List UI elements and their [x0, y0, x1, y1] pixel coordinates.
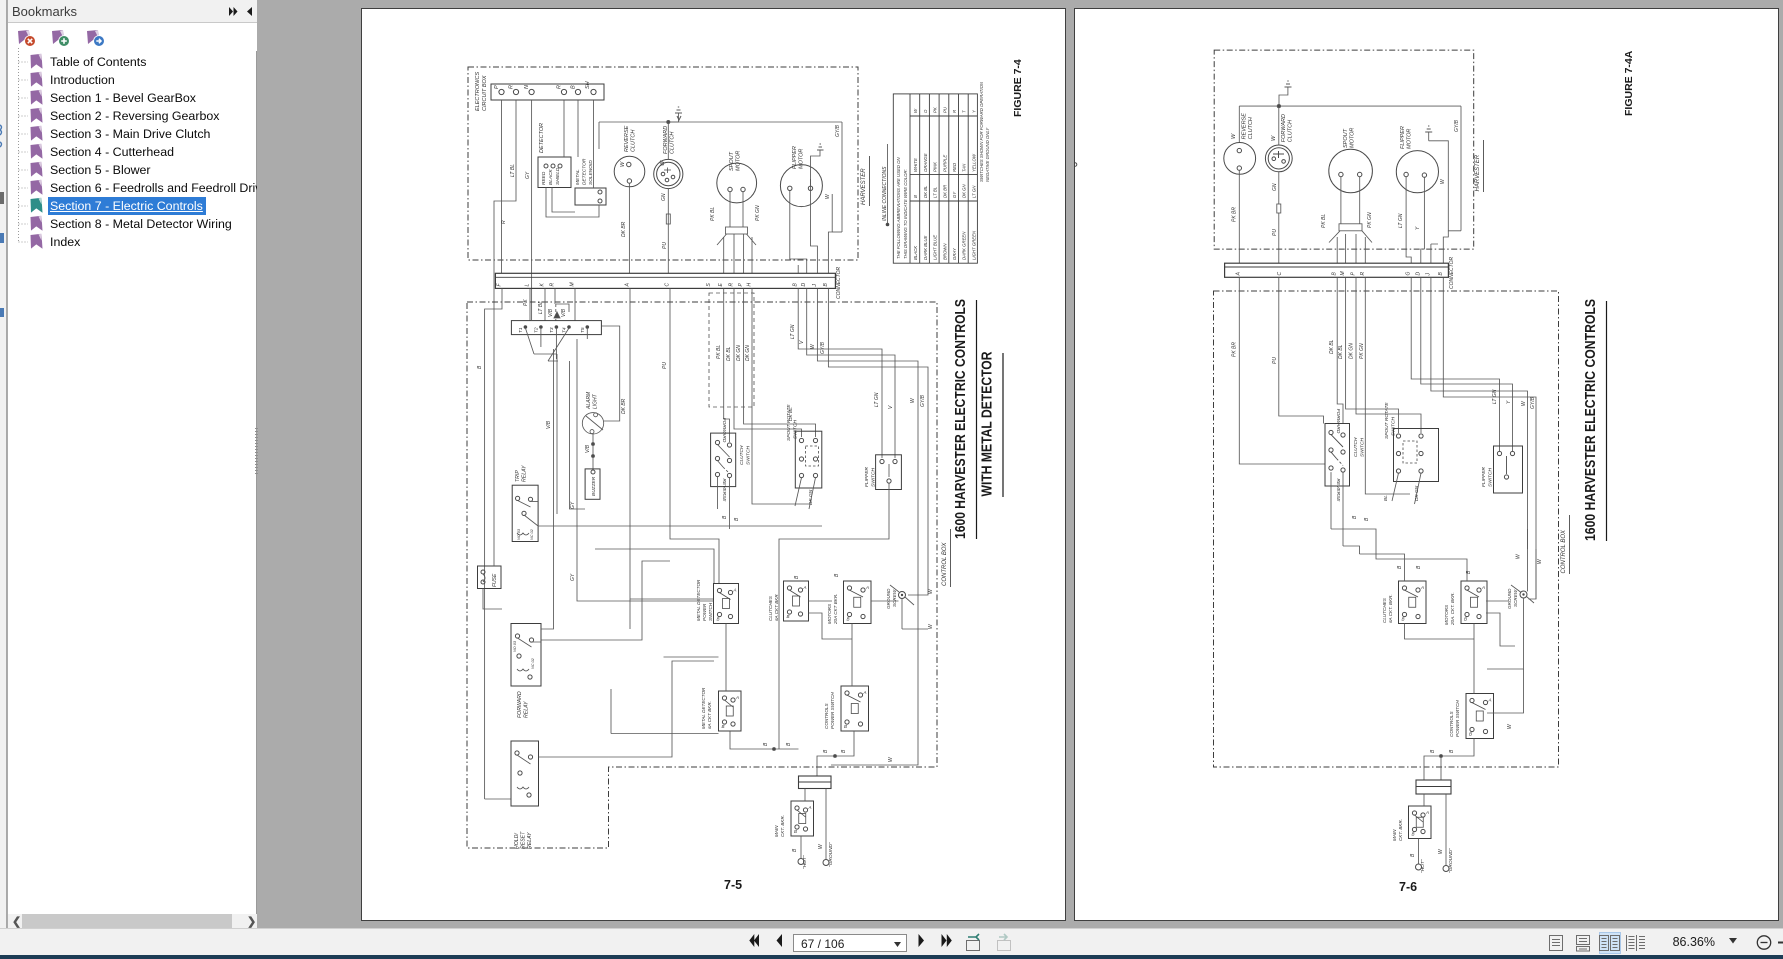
svg-text:BROWN: BROWN: [942, 243, 947, 260]
svg-text:BLACK: BLACK: [548, 168, 554, 185]
svg-text:SCREW: SCREW: [892, 589, 897, 607]
svg-text:B: B: [1397, 565, 1403, 569]
svg-text:CLUTCHES: CLUTCHES: [1382, 597, 1387, 623]
svg-text:A: A: [1420, 585, 1424, 590]
svg-text:MOTOR: MOTOR: [799, 149, 805, 169]
svg-text:CKT. BKR.: CKT. BKR.: [1398, 819, 1403, 841]
svg-text:RELAY: RELAY: [527, 832, 533, 849]
svg-text:A: A: [735, 695, 739, 700]
svg-text:DK BR: DK BR: [621, 398, 627, 414]
svg-text:FUSE: FUSE: [492, 573, 498, 587]
svg-text:MOTOR: MOTOR: [1350, 128, 1356, 148]
svg-text:DETECTOR: DETECTOR: [539, 123, 545, 153]
svg-text:T5: T5: [580, 327, 586, 333]
svg-text:GY/B: GY/B: [820, 341, 826, 354]
svg-text:R: R: [1360, 272, 1366, 276]
svg-text:B: B: [847, 617, 850, 622]
svg-text:PK BL: PK BL: [716, 345, 722, 359]
svg-text:RED: RED: [952, 163, 957, 172]
svg-text:REVERSE: REVERSE: [1335, 479, 1341, 503]
svg-text:L: L: [525, 284, 531, 287]
svg-text:GRAY: GRAY: [952, 247, 957, 260]
svg-text:GN: GN: [1272, 183, 1278, 191]
svg-text:ORANGE: ORANGE: [923, 153, 928, 172]
svg-text:ELECTRONICS: ELECTRONICS: [475, 72, 481, 111]
svg-text:TAN: TAN: [962, 163, 967, 172]
svg-text:SWITCHES SHOWN FOR FORWARD OPE: SWITCHES SHOWN FOR FORWARD OPERATION: [979, 81, 984, 182]
svg-text:SWITCH: SWITCH: [1391, 417, 1397, 436]
svg-text:B: B: [722, 515, 728, 519]
svg-text:DK BR: DK BR: [621, 221, 627, 237]
svg-text:DK GN: DK GN: [736, 345, 742, 361]
svg-text:B: B: [913, 195, 918, 198]
svg-text:CLUTCH: CLUTCH: [1287, 120, 1293, 142]
svg-text:B: B: [1412, 832, 1415, 837]
svg-text:PK: PK: [933, 106, 938, 113]
svg-text:SWITCH: SWITCH: [793, 420, 799, 439]
svg-text:GY/B: GY/B: [835, 124, 841, 137]
svg-text:CONTROLS: CONTROLS: [1449, 711, 1454, 737]
svg-text:LT BL: LT BL: [510, 164, 516, 177]
svg-text:"GROUND": "GROUND": [828, 842, 834, 867]
svg-text:DK BL: DK BL: [726, 346, 732, 361]
svg-text:INLINE CONNECTIONS: INLINE CONNECTIONS: [882, 166, 888, 221]
svg-text:FLIPPER: FLIPPER: [864, 466, 870, 487]
svg-text:CONNECTOR: CONNECTOR: [1449, 256, 1455, 289]
svg-text:B: B: [477, 365, 483, 369]
svg-text:WITH METAL DETECTOR: WITH METAL DETECTOR: [979, 351, 996, 496]
svg-text:B: B: [823, 283, 829, 287]
svg-text:PINK: PINK: [933, 161, 938, 172]
svg-text:PU: PU: [1272, 229, 1278, 236]
svg-text:G: G: [1406, 272, 1412, 276]
svg-text:Y: Y: [1506, 400, 1512, 404]
svg-text:FORWARD: FORWARD: [1281, 114, 1287, 142]
svg-text:B: B: [844, 724, 847, 729]
svg-text:P: P: [738, 283, 744, 287]
svg-text:CIRCUIT BOX: CIRCUIT BOX: [482, 75, 488, 111]
svg-text:CONTROL BOX: CONTROL BOX: [942, 541, 948, 586]
svg-text:A: A: [1236, 272, 1242, 277]
svg-text:HARVESTER: HARVESTER: [1475, 154, 1481, 191]
svg-text:B: B: [823, 749, 829, 753]
svg-text:REED: REED: [541, 171, 547, 185]
svg-text:CLUTCH: CLUTCH: [1248, 117, 1254, 139]
svg-text:SHIELD: SHIELD: [555, 167, 561, 185]
svg-text:DK GN: DK GN: [1414, 485, 1420, 501]
svg-text:W: W: [888, 756, 894, 762]
svg-text:PK: PK: [523, 299, 529, 306]
svg-text:PK GN: PK GN: [755, 205, 761, 221]
svg-text:NEGATIVE GROUND ONLY: NEGATIVE GROUND ONLY: [985, 127, 990, 182]
svg-text:GY/B: GY/B: [1530, 396, 1536, 409]
svg-text:W: W: [1537, 558, 1543, 564]
svg-text:R: R: [952, 110, 957, 113]
svg-text:POWER SWITCH: POWER SWITCH: [830, 692, 835, 729]
svg-text:W: W: [620, 161, 626, 167]
svg-text:LT GN: LT GN: [874, 392, 880, 407]
svg-text:MOTOR: MOTOR: [736, 151, 742, 171]
svg-text:P: P: [494, 85, 500, 89]
svg-text:N: N: [524, 85, 530, 89]
svg-text:Y: Y: [1415, 226, 1421, 230]
svg-text:SWITCH: SWITCH: [708, 602, 713, 621]
svg-text:K: K: [540, 283, 546, 287]
svg-text:6A CKT. BKR.: 6A CKT. BKR.: [1388, 594, 1393, 623]
svg-text:V/B: V/B: [548, 308, 554, 317]
svg-text:DK BL: DK BL: [923, 185, 928, 198]
svg-text:MOTORS: MOTORS: [1444, 604, 1449, 625]
svg-text:GN: GN: [661, 193, 667, 201]
svg-text:W: W: [913, 108, 918, 113]
svg-text:C: C: [665, 283, 671, 287]
svg-text:W: W: [928, 623, 934, 629]
svg-text:B: B: [722, 724, 725, 729]
svg-text:LIGHT: LIGHT: [593, 393, 599, 409]
svg-text:FLIPPER: FLIPPER: [1481, 466, 1487, 487]
svg-text:SWITCH: SWITCH: [1488, 468, 1494, 487]
svg-text:A: A: [1488, 698, 1492, 703]
svg-text:LIGHT BLUE: LIGHT BLUE: [933, 235, 938, 260]
svg-text:B: B: [793, 283, 799, 287]
svg-text:PU: PU: [1272, 357, 1278, 364]
svg-text:W: W: [825, 193, 831, 199]
svg-text:W: W: [1507, 723, 1513, 729]
svg-text:A: A: [1481, 585, 1485, 590]
svg-text:B: B: [734, 517, 740, 521]
svg-text:W: W: [1516, 553, 1522, 559]
svg-text:MOTOR: MOTOR: [1407, 129, 1413, 149]
svg-text:A: A: [808, 805, 812, 810]
svg-text:A: A: [625, 283, 631, 288]
svg-text:S: S: [706, 283, 712, 287]
svg-text:V/B: V/B: [561, 308, 567, 317]
svg-text:FORWARD: FORWARD: [1335, 409, 1341, 434]
svg-text:B: B: [1410, 853, 1416, 857]
svg-text:NC 02: NC 02: [530, 528, 534, 540]
svg-text:W: W: [910, 397, 916, 403]
svg-text:A: A: [803, 585, 807, 590]
svg-text:B: B: [1469, 732, 1472, 737]
svg-text:W: W: [818, 843, 824, 849]
svg-text:PK GN: PK GN: [1367, 212, 1373, 228]
svg-text:REVERSE: REVERSE: [624, 125, 630, 152]
svg-text:V/B: V/B: [546, 420, 552, 429]
svg-text:CLUTCH: CLUTCH: [670, 132, 676, 154]
svg-text:CONTROLS: CONTROLS: [824, 703, 829, 729]
svg-text:W: W: [810, 343, 816, 349]
svg-text:CKT. BKR.: CKT. BKR.: [780, 815, 785, 837]
svg-text:PK GN: PK GN: [1359, 343, 1365, 359]
svg-text:DARK BLUE: DARK BLUE: [923, 236, 928, 260]
svg-text:LT GN: LT GN: [1492, 389, 1498, 404]
svg-text:V/B: V/B: [585, 444, 591, 453]
svg-text:CLUTCH: CLUTCH: [631, 130, 637, 152]
svg-text:Y: Y: [971, 109, 976, 113]
svg-text:CONTROL BOX: CONTROL BOX: [1561, 529, 1567, 574]
svg-text:YELLOW: YELLOW: [971, 153, 976, 172]
svg-text:RELAY: RELAY: [524, 701, 530, 718]
svg-text:DK BL: DK BL: [1329, 339, 1335, 354]
svg-text:LT GN: LT GN: [971, 185, 976, 198]
svg-text:PURPLE: PURPLE: [942, 155, 947, 172]
svg-text:W: W: [1521, 400, 1527, 406]
svg-text:C: C: [1277, 272, 1283, 276]
svg-text:DK GN: DK GN: [962, 183, 967, 198]
svg-text:B: B: [1402, 617, 1405, 622]
svg-text:SCREW: SCREW: [1513, 589, 1518, 607]
svg-text:J: J: [1425, 273, 1431, 277]
svg-text:7-6: 7-6: [1399, 880, 1417, 894]
svg-text:"GROUND": "GROUND": [1448, 848, 1454, 873]
svg-text:M: M: [1340, 271, 1346, 276]
svg-text:LT BL: LT BL: [538, 301, 544, 314]
svg-text:RESET: RESET: [521, 831, 527, 849]
svg-text:METAL: METAL: [575, 169, 581, 185]
svg-text:B: B: [1416, 565, 1422, 569]
svg-text:"HOT": "HOT": [802, 855, 808, 869]
svg-text:LT BL: LT BL: [933, 186, 938, 198]
svg-text:METAL DETECTOR: METAL DETECTOR: [701, 687, 706, 729]
svg-text:W: W: [1438, 848, 1444, 854]
svg-text:B: B: [1364, 517, 1370, 521]
svg-text:D: D: [801, 283, 807, 287]
svg-text:SPOUT: SPOUT: [729, 151, 735, 171]
svg-text:6A CKT BKR: 6A CKT BKR: [774, 594, 779, 621]
svg-text:F: F: [497, 283, 503, 287]
svg-text:HOLD/: HOLD/: [514, 833, 520, 849]
svg-text:B: B: [1464, 617, 1467, 622]
svg-text:B: B: [1430, 749, 1436, 753]
svg-text:CLUTCH: CLUTCH: [1353, 437, 1359, 457]
svg-text:DK BR: DK BR: [942, 185, 947, 198]
svg-text:T: T: [962, 110, 967, 113]
svg-text:DARK GREEN: DARK GREEN: [962, 231, 967, 260]
svg-text:R: R: [550, 283, 556, 287]
svg-text:J: J: [812, 284, 818, 288]
svg-text:RELAY: RELAY: [522, 465, 528, 482]
svg-text:SWITCH: SWITCH: [1360, 438, 1366, 457]
svg-text:LT GN: LT GN: [790, 324, 796, 339]
svg-text:T2: T2: [534, 327, 540, 333]
svg-text:A: A: [865, 585, 869, 590]
svg-text:GY/B: GY/B: [1454, 119, 1460, 132]
svg-text:"HOT": "HOT": [1420, 859, 1426, 873]
svg-text:SWITCH: SWITCH: [871, 468, 877, 487]
svg-text:FORWARD: FORWARD: [517, 691, 523, 718]
svg-text:METAL DETECTOR: METAL DETECTOR: [696, 579, 701, 621]
svg-text:FIGURE 7-4A: FIGURE 7-4A: [1623, 50, 1635, 116]
svg-text:PU: PU: [942, 106, 947, 113]
svg-text:CLUTCHES: CLUTCHES: [768, 595, 773, 621]
svg-text:B: B: [786, 742, 792, 746]
svg-text:20A. CKT. BKR.: 20A. CKT. BKR.: [1450, 592, 1455, 626]
svg-text:NC 02: NC 02: [531, 657, 535, 669]
svg-text:E: E: [718, 283, 724, 287]
svg-text:GROUND: GROUND: [1507, 588, 1512, 609]
svg-text:MAIN: MAIN: [774, 825, 779, 837]
svg-text:SH: SH: [585, 81, 591, 89]
svg-text:NO 03: NO 03: [513, 640, 517, 652]
svg-text:W: W: [660, 160, 666, 166]
svg-text:GROUND: GROUND: [886, 588, 891, 609]
svg-text:REVERSE: REVERSE: [1241, 113, 1247, 140]
svg-text:PK BL: PK BL: [710, 207, 716, 221]
svg-text:FIGURE 7-4: FIGURE 7-4: [1012, 59, 1024, 117]
svg-text:DK BL: DK BL: [788, 407, 794, 421]
svg-text:1600 HARVESTER ELECTRIC CONTRO: 1600 HARVESTER ELECTRIC CONTROLS: [952, 299, 969, 539]
svg-text:BLACK: BLACK: [913, 245, 918, 260]
svg-text:SWITCH: SWITCH: [746, 446, 752, 465]
svg-text:P: P: [1351, 272, 1357, 276]
svg-text:PU: PU: [662, 242, 668, 249]
svg-text:D: D: [1415, 272, 1421, 276]
svg-text:TRIP: TRIP: [515, 470, 521, 482]
svg-text:B: B: [717, 617, 720, 622]
svg-text:LIGHT GREEN: LIGHT GREEN: [971, 230, 976, 260]
svg-text:B: B: [1438, 272, 1444, 276]
svg-text:GY: GY: [570, 573, 576, 581]
svg-text:GY/B: GY/B: [920, 394, 926, 407]
svg-text:A: A: [863, 690, 867, 695]
svg-text:THE FOLLOWING ABBREVIATIONS AR: THE FOLLOWING ABBREVIATIONS ARE USED ON: [896, 157, 901, 259]
svg-text:BL: BL: [1383, 495, 1389, 501]
svg-text:R: R: [501, 220, 507, 224]
svg-text:GY: GY: [525, 171, 531, 179]
svg-text:SPOUT ROTATE: SPOUT ROTATE: [1384, 402, 1390, 439]
svg-text:1600 HARVESTER ELECTRIC CONTRO: 1600 HARVESTER ELECTRIC CONTROLS: [1582, 299, 1599, 541]
svg-text:GY: GY: [952, 191, 957, 198]
svg-text:THIS DRAWING TO INDICATE WIRE: THIS DRAWING TO INDICATE WIRE COLOR:: [903, 168, 908, 259]
svg-text:B: B: [1352, 515, 1358, 519]
svg-text:W: W: [1231, 133, 1237, 139]
svg-text:A: A: [733, 588, 737, 593]
svg-text:FORWARD: FORWARD: [721, 418, 727, 443]
svg-text:ALARM: ALARM: [586, 391, 592, 410]
svg-text:POWER SWITCH: POWER SWITCH: [1455, 700, 1460, 737]
svg-text:REVERSE: REVERSE: [721, 479, 727, 503]
svg-text:LT GN: LT GN: [1398, 213, 1404, 228]
svg-text:CONNECTOR: CONNECTOR: [836, 266, 842, 299]
svg-text:20A CKT BKR.: 20A CKT BKR.: [833, 594, 838, 625]
svg-text:WHITE: WHITE: [913, 158, 918, 172]
svg-text:B: B: [794, 829, 797, 834]
svg-text:R: R: [557, 85, 563, 89]
svg-text:DK BL: DK BL: [1338, 344, 1344, 359]
svg-text:NO 03: NO 03: [517, 528, 521, 540]
svg-text:B: B: [794, 575, 800, 579]
svg-text:DETECTOR: DETECTOR: [582, 158, 588, 185]
svg-text:BUZZER: BUZZER: [591, 476, 597, 496]
svg-text:H: H: [747, 283, 753, 287]
svg-text:T1: T1: [518, 327, 524, 333]
svg-text:B: B: [1332, 272, 1338, 276]
svg-text:7-5: 7-5: [724, 878, 742, 892]
svg-text:R: R: [509, 85, 515, 89]
svg-text:DK GN: DK GN: [808, 489, 814, 505]
svg-text:MAIN: MAIN: [1392, 829, 1397, 841]
svg-text:6A CKT BKR.: 6A CKT BKR.: [707, 701, 712, 729]
svg-text:W: W: [1440, 178, 1446, 184]
svg-text:POWER: POWER: [702, 603, 707, 621]
svg-text:DK GN: DK GN: [745, 345, 751, 361]
svg-text:PU: PU: [662, 362, 668, 369]
svg-text:FLIPPER: FLIPPER: [1400, 126, 1406, 149]
svg-text:M: M: [570, 282, 576, 287]
svg-text:V: V: [799, 340, 805, 344]
svg-text:B: B: [834, 573, 840, 577]
svg-text:V: V: [888, 405, 894, 409]
svg-text:B: B: [1449, 749, 1455, 753]
svg-text:W: W: [928, 588, 934, 594]
svg-text:PK BR: PK BR: [1231, 207, 1237, 222]
svg-text:O: O: [923, 109, 928, 113]
svg-text:A: A: [1425, 810, 1429, 815]
svg-text:SPOUT: SPOUT: [1343, 128, 1349, 148]
svg-text:B: B: [763, 742, 769, 746]
svg-text:FLIPPER: FLIPPER: [792, 146, 798, 169]
svg-text:W: W: [1271, 135, 1277, 141]
svg-text:DK GN: DK GN: [1349, 343, 1355, 359]
svg-text:B: B: [841, 749, 847, 753]
svg-text:GY: GY: [570, 501, 576, 509]
svg-text:R: R: [729, 283, 735, 287]
svg-text:PK BL: PK BL: [1321, 214, 1327, 228]
svg-text:MOTORS: MOTORS: [827, 603, 832, 624]
svg-text:B: B: [571, 85, 577, 89]
svg-text:HARVESTER: HARVESTER: [861, 168, 867, 205]
svg-text:B: B: [792, 848, 798, 852]
svg-text:PK BR: PK BR: [1231, 342, 1237, 357]
svg-text:T3: T3: [549, 327, 555, 333]
svg-text:CLUTCH: CLUTCH: [739, 445, 745, 465]
svg-text:B: B: [787, 614, 790, 619]
